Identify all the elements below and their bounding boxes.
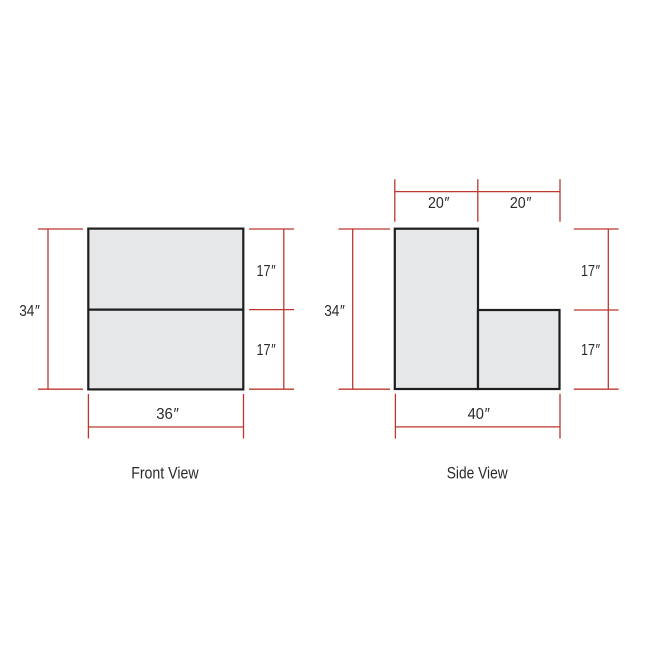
svg-text:17″: 17″ — [257, 263, 277, 280]
svg-text:34″: 34″ — [324, 303, 345, 320]
svg-text:20″: 20″ — [428, 195, 450, 212]
svg-text:17″: 17″ — [257, 342, 277, 359]
svg-text:Front View: Front View — [131, 464, 199, 483]
svg-text:20″: 20″ — [510, 195, 532, 212]
svg-text:36″: 36″ — [156, 406, 179, 423]
svg-text:Side View: Side View — [447, 464, 508, 483]
svg-text:17″: 17″ — [581, 263, 601, 280]
svg-text:34″: 34″ — [19, 303, 40, 320]
svg-text:40″: 40″ — [468, 406, 491, 423]
svg-text:17″: 17″ — [581, 342, 601, 359]
